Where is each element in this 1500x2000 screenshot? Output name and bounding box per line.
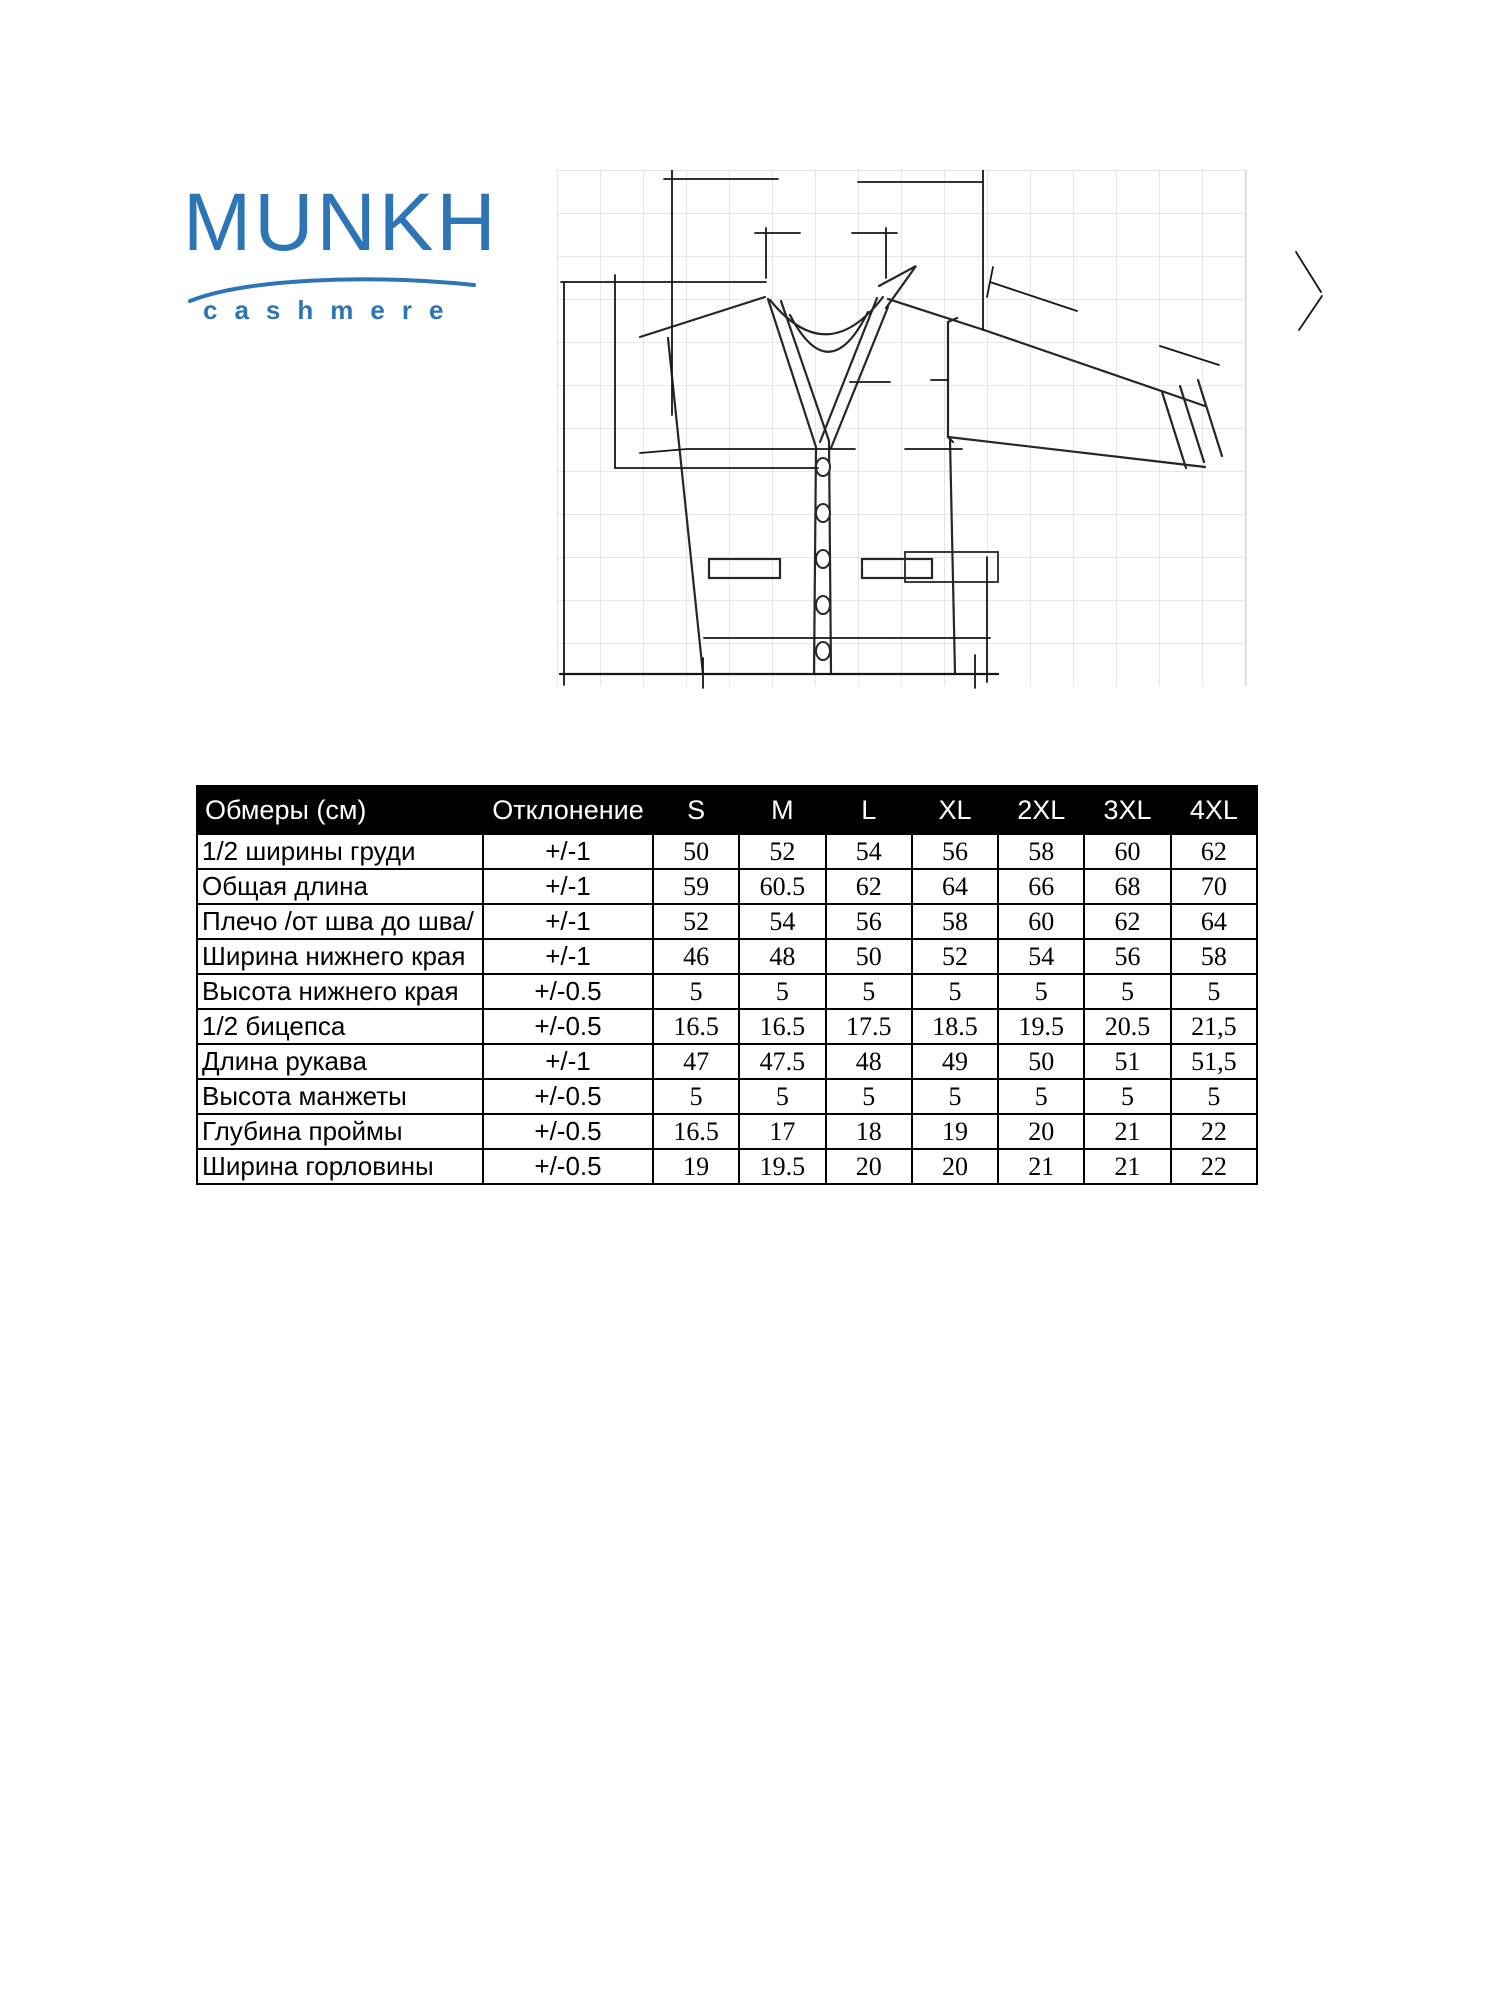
size-value: 5 (739, 1079, 825, 1114)
size-value: 58 (998, 834, 1084, 869)
size-value: 64 (1171, 904, 1257, 939)
size-value: 60 (1084, 834, 1170, 869)
measure-label: 1/2 ширины груди (197, 834, 483, 869)
size-value: 66 (998, 869, 1084, 904)
deviation-value: +/-0.5 (483, 1114, 653, 1149)
size-value: 52 (912, 939, 998, 974)
column-header: S (653, 786, 739, 834)
measure-label: 1/2 бицепса (197, 1009, 483, 1044)
table-row: Плечо /от шва до шва/+/-152545658606264 (197, 904, 1257, 939)
table-header-row: Обмеры (см)ОтклонениеSMLXL2XL3XL4XL (197, 786, 1257, 834)
table-row: Ширина нижнего края+/-146485052545658 (197, 939, 1257, 974)
size-value: 49 (912, 1044, 998, 1079)
size-value: 54 (826, 834, 912, 869)
size-value: 56 (912, 834, 998, 869)
column-header: 2XL (998, 786, 1084, 834)
size-value: 5 (912, 1079, 998, 1114)
size-value: 62 (826, 869, 912, 904)
logo-subtitle-text: cashmere (203, 295, 460, 326)
column-header: XL (912, 786, 998, 834)
size-value: 62 (1171, 834, 1257, 869)
garment-sketch (557, 170, 1337, 692)
size-value: 18 (826, 1114, 912, 1149)
size-value: 20 (826, 1149, 912, 1184)
size-value: 5 (1171, 974, 1257, 1009)
size-value: 5 (1171, 1079, 1257, 1114)
column-header: 4XL (1171, 786, 1257, 834)
size-value: 17.5 (826, 1009, 912, 1044)
measure-label: Глубина проймы (197, 1114, 483, 1149)
size-value: 18.5 (912, 1009, 998, 1044)
size-value: 5 (826, 1079, 912, 1114)
measure-label: Ширина нижнего края (197, 939, 483, 974)
size-value: 16.5 (653, 1114, 739, 1149)
measure-label: Высота нижнего края (197, 974, 483, 1009)
size-value: 19 (653, 1149, 739, 1184)
size-value: 21,5 (1171, 1009, 1257, 1044)
size-value: 50 (998, 1044, 1084, 1079)
size-value: 46 (653, 939, 739, 974)
size-value: 19 (912, 1114, 998, 1149)
measure-label: Высота манжеты (197, 1079, 483, 1114)
size-value: 56 (826, 904, 912, 939)
table-row: Ширина горловины+/-0.51919.52020212122 (197, 1149, 1257, 1184)
size-value: 51 (1084, 1044, 1170, 1079)
size-value: 16.5 (739, 1009, 825, 1044)
size-value: 54 (739, 904, 825, 939)
deviation-value: +/-1 (483, 869, 653, 904)
size-value: 20 (998, 1114, 1084, 1149)
table-row: Общая длина+/-15960.56264666870 (197, 869, 1257, 904)
deviation-value: +/-1 (483, 1044, 653, 1079)
column-header: Отклонение (483, 786, 653, 834)
size-value: 22 (1171, 1114, 1257, 1149)
size-value: 68 (1084, 869, 1170, 904)
column-header: 3XL (1084, 786, 1170, 834)
deviation-value: +/-0.5 (483, 1149, 653, 1184)
size-value: 20 (912, 1149, 998, 1184)
size-value: 17 (739, 1114, 825, 1149)
deviation-value: +/-1 (483, 939, 653, 974)
size-value: 62 (1084, 904, 1170, 939)
size-value: 50 (826, 939, 912, 974)
size-value: 5 (826, 974, 912, 1009)
size-value: 59 (653, 869, 739, 904)
size-value: 20.5 (1084, 1009, 1170, 1044)
size-value: 21 (998, 1149, 1084, 1184)
size-value: 19.5 (998, 1009, 1084, 1044)
table-row: Высота манжеты+/-0.55555555 (197, 1079, 1257, 1114)
deviation-value: +/-0.5 (483, 1009, 653, 1044)
table-row: 1/2 бицепса+/-0.516.516.517.518.519.520.… (197, 1009, 1257, 1044)
table-row: Высота нижнего края+/-0.55555555 (197, 974, 1257, 1009)
measure-label: Плечо /от шва до шва/ (197, 904, 483, 939)
size-value: 5 (653, 974, 739, 1009)
logo-brand-text: MUNKH (183, 182, 499, 264)
size-value: 5 (998, 1079, 1084, 1114)
size-value: 50 (653, 834, 739, 869)
size-table: Обмеры (см)ОтклонениеSMLXL2XL3XL4XL 1/2 … (196, 785, 1258, 1185)
table-row: 1/2 ширины груди+/-150525456586062 (197, 834, 1257, 869)
deviation-value: +/-1 (483, 904, 653, 939)
size-value: 54 (998, 939, 1084, 974)
size-value: 5 (998, 974, 1084, 1009)
size-value: 22 (1171, 1149, 1257, 1184)
size-value: 5 (1084, 974, 1170, 1009)
size-value: 5 (1084, 1079, 1170, 1114)
measure-label: Ширина горловины (197, 1149, 483, 1184)
deviation-value: +/-0.5 (483, 1079, 653, 1114)
size-value: 16.5 (653, 1009, 739, 1044)
table-row: Длина рукава+/-14747.54849505151,5 (197, 1044, 1257, 1079)
size-value: 70 (1171, 869, 1257, 904)
size-value: 21 (1084, 1114, 1170, 1149)
size-value: 5 (912, 974, 998, 1009)
size-value: 51,5 (1171, 1044, 1257, 1079)
size-value: 47.5 (739, 1044, 825, 1079)
measure-label: Длина рукава (197, 1044, 483, 1079)
size-value: 21 (1084, 1149, 1170, 1184)
size-value: 48 (739, 939, 825, 974)
size-value: 52 (653, 904, 739, 939)
page: { "logo": { "brand": "MUNKH", "subtitle"… (0, 0, 1500, 2000)
size-table-body: 1/2 ширины груди+/-150525456586062Общая … (197, 834, 1257, 1184)
size-value: 52 (739, 834, 825, 869)
column-header: Обмеры (см) (197, 786, 483, 834)
size-value: 47 (653, 1044, 739, 1079)
measure-label: Общая длина (197, 869, 483, 904)
sketch-grid (557, 170, 1246, 686)
deviation-value: +/-1 (483, 834, 653, 869)
size-value: 64 (912, 869, 998, 904)
size-value: 56 (1084, 939, 1170, 974)
column-header: L (826, 786, 912, 834)
size-value: 19.5 (739, 1149, 825, 1184)
size-value: 58 (1171, 939, 1257, 974)
size-value: 58 (912, 904, 998, 939)
size-value: 60.5 (739, 869, 825, 904)
size-value: 60 (998, 904, 1084, 939)
size-value: 5 (739, 974, 825, 1009)
size-value: 48 (826, 1044, 912, 1079)
column-header: M (739, 786, 825, 834)
deviation-value: +/-0.5 (483, 974, 653, 1009)
table-row: Глубина проймы+/-0.516.5171819202122 (197, 1114, 1257, 1149)
size-value: 5 (653, 1079, 739, 1114)
